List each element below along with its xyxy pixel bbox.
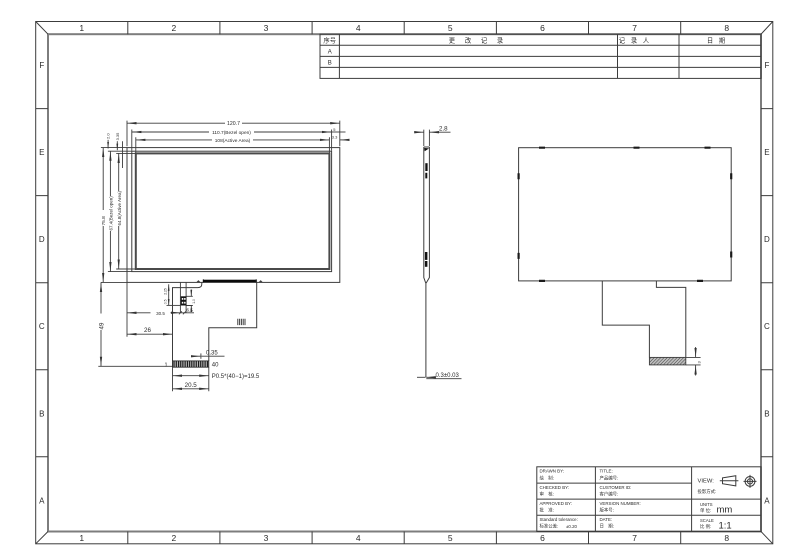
svg-text:2: 2	[172, 23, 177, 33]
svg-text:单 位:: 单 位:	[700, 507, 711, 514]
svg-text:108(Active Area): 108(Active Area)	[215, 138, 251, 144]
svg-text:A: A	[764, 496, 770, 505]
svg-text:20.5: 20.5	[185, 382, 198, 389]
svg-text:3: 3	[264, 23, 269, 33]
svg-text:2.25: 2.25	[163, 288, 167, 295]
svg-text:F: F	[764, 61, 769, 70]
svg-text:5: 5	[448, 23, 453, 33]
svg-text:序号: 序号	[323, 35, 336, 44]
svg-text:mm: mm	[717, 505, 733, 516]
svg-text:40: 40	[212, 362, 219, 368]
svg-text:CHECKED BY:: CHECKED BY:	[540, 485, 570, 490]
svg-text:8: 8	[724, 533, 729, 543]
svg-text:30.5: 30.5	[156, 311, 165, 316]
svg-text:0.5: 0.5	[163, 299, 167, 304]
svg-text:APPROVED BY:: APPROVED BY:	[540, 501, 572, 506]
svg-text:TITLE:: TITLE:	[600, 469, 613, 474]
svg-text:记 录 人: 记 录 人	[619, 37, 651, 45]
svg-text:67.4(Bezel open): 67.4(Bezel open)	[109, 196, 114, 231]
svg-text:7: 7	[632, 23, 637, 33]
svg-text:日 期: 日 期	[707, 37, 727, 45]
svg-text:审 核:: 审 核:	[540, 491, 554, 498]
svg-text:VIEW:: VIEW:	[698, 479, 715, 485]
svg-text:3: 3	[264, 533, 269, 543]
svg-text:1:1: 1:1	[719, 521, 732, 532]
svg-text:1: 1	[79, 533, 84, 543]
svg-text:C: C	[39, 322, 45, 331]
svg-text:VERSION NUMBER:: VERSION NUMBER:	[600, 501, 641, 506]
svg-text:3.3: 3.3	[332, 135, 338, 140]
svg-text:64.8(Active Area): 64.8(Active Area)	[117, 190, 122, 225]
svg-text:2.8: 2.8	[439, 126, 448, 133]
svg-text:B: B	[328, 60, 332, 66]
svg-text:±0.20: ±0.20	[566, 524, 578, 529]
svg-text:A: A	[39, 496, 45, 505]
svg-text:5: 5	[448, 533, 453, 543]
svg-text:1: 1	[79, 23, 84, 33]
svg-text:C: C	[764, 322, 770, 331]
svg-text:SCALE: SCALE	[700, 518, 714, 523]
svg-text:4: 4	[356, 533, 361, 543]
svg-text:Standard tolerance:: Standard tolerance:	[540, 517, 578, 522]
svg-text:投影方式:: 投影方式:	[698, 488, 717, 495]
svg-text:D: D	[764, 235, 770, 244]
svg-text:E: E	[764, 148, 769, 157]
svg-text:110.7(Bezel open): 110.7(Bezel open)	[212, 130, 251, 136]
svg-text:49: 49	[99, 322, 106, 329]
svg-text:120.7: 120.7	[227, 121, 240, 127]
svg-text:6: 6	[540, 533, 545, 543]
svg-text:UNITS: UNITS	[700, 502, 713, 507]
svg-text:0.3±0.03: 0.3±0.03	[436, 373, 460, 379]
svg-text:客户编号:: 客户编号:	[600, 491, 619, 498]
svg-text:26: 26	[144, 327, 151, 334]
svg-text:2: 2	[172, 533, 177, 543]
svg-text:版本号:: 版本号:	[600, 507, 614, 514]
svg-text:3.35: 3.35	[115, 132, 120, 141]
svg-text:比 例:: 比 例:	[700, 523, 711, 530]
svg-text:6.5: 6.5	[187, 308, 194, 313]
svg-text:B: B	[764, 409, 769, 418]
svg-text:B: B	[39, 409, 44, 418]
svg-text:DATE:: DATE:	[600, 517, 613, 522]
svg-text:1.0: 1.0	[192, 299, 196, 304]
svg-text:批 准:: 批 准:	[540, 507, 554, 514]
svg-text:更 改 记 录: 更 改 记 录	[449, 36, 507, 45]
svg-text:8: 8	[724, 23, 729, 33]
svg-text:6: 6	[540, 23, 545, 33]
svg-text:D: D	[39, 235, 45, 244]
svg-text:CUSTOMER ID:: CUSTOMER ID:	[600, 485, 632, 490]
svg-text:E: E	[39, 148, 44, 157]
svg-text:绘 制:: 绘 制:	[540, 474, 554, 481]
svg-text:F: F	[39, 61, 44, 70]
svg-text:4: 4	[356, 23, 361, 33]
svg-text:75.8: 75.8	[101, 216, 107, 226]
svg-text:1: 1	[164, 362, 167, 368]
svg-text:A: A	[328, 49, 332, 55]
svg-text:标准公差:: 标准公差:	[540, 523, 559, 530]
svg-text:0.35: 0.35	[206, 351, 218, 357]
svg-text:DRAWN BY:: DRAWN BY:	[540, 469, 564, 474]
svg-text:P0.5*(40−1)=19.5: P0.5*(40−1)=19.5	[212, 374, 260, 380]
svg-text:2.0: 2.0	[106, 133, 111, 139]
svg-text:产品编号:: 产品编号:	[600, 474, 619, 481]
svg-text:7: 7	[632, 533, 637, 543]
